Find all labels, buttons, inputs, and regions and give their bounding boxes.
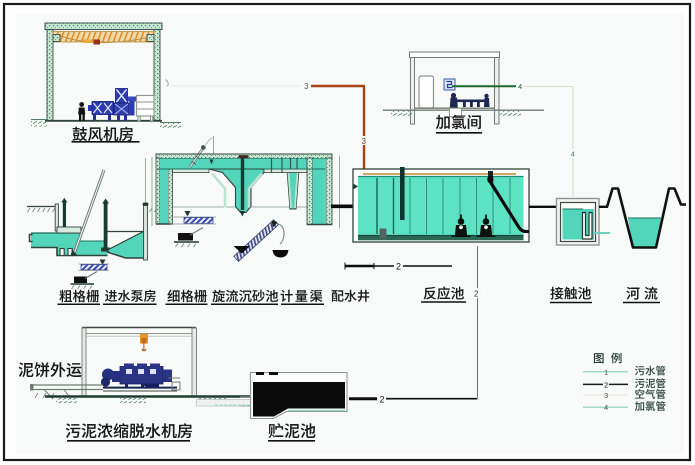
svg-text:4: 4 <box>604 403 608 412</box>
svg-text:3: 3 <box>362 137 367 146</box>
svg-text:2: 2 <box>380 395 385 405</box>
svg-text:2: 2 <box>396 262 401 272</box>
svg-text:1: 1 <box>604 368 608 377</box>
svg-text:2: 2 <box>474 290 479 299</box>
svg-text:4: 4 <box>571 150 575 159</box>
svg-text:4: 4 <box>518 82 522 91</box>
svg-text:2: 2 <box>604 380 608 389</box>
svg-text:3: 3 <box>604 391 608 400</box>
svg-text:3: 3 <box>304 82 309 91</box>
